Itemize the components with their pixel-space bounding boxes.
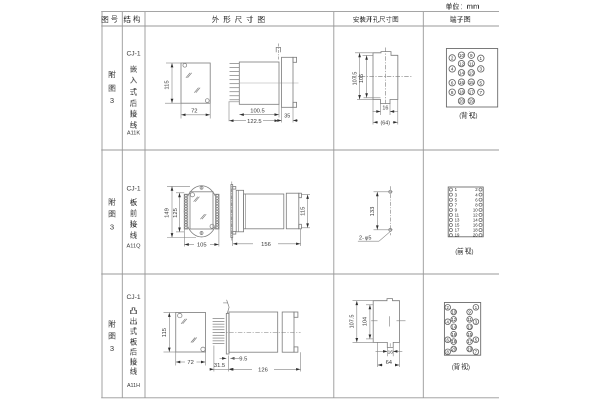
svg-text:105: 105: [197, 243, 207, 249]
svg-text:115: 115: [300, 207, 306, 216]
svg-text:31.5: 31.5: [214, 363, 225, 369]
svg-text:3: 3: [110, 96, 114, 105]
svg-text:16: 16: [459, 80, 465, 85]
svg-text:104: 104: [363, 317, 369, 326]
svg-text:CJ-1: CJ-1: [126, 294, 140, 301]
svg-text:2: 2: [451, 56, 454, 61]
svg-text:18: 18: [451, 339, 456, 344]
svg-text:20: 20: [473, 233, 478, 238]
svg-text:7: 7: [480, 90, 483, 95]
svg-text:126: 126: [258, 367, 268, 373]
svg-text:1: 1: [475, 305, 478, 310]
svg-text:(64): (64): [381, 120, 391, 126]
svg-text:13: 13: [467, 324, 472, 329]
svg-text:17: 17: [467, 339, 472, 344]
svg-text:6: 6: [447, 337, 450, 342]
svg-text:19: 19: [467, 347, 472, 352]
svg-text:4: 4: [451, 67, 454, 72]
svg-text:3: 3: [110, 344, 114, 353]
svg-text:9: 9: [470, 53, 473, 58]
svg-text:): ): [475, 113, 477, 120]
svg-text:19: 19: [455, 233, 460, 238]
svg-text:CJ-1: CJ-1: [126, 51, 140, 58]
svg-text:17: 17: [469, 89, 475, 94]
svg-text:19: 19: [469, 99, 475, 104]
svg-text:9.5: 9.5: [239, 356, 247, 362]
svg-text:10: 10: [459, 53, 465, 58]
svg-text:(: (: [452, 364, 455, 371]
svg-text:4: 4: [447, 319, 450, 324]
svg-text:20: 20: [459, 99, 465, 104]
svg-text:10: 10: [451, 310, 456, 315]
svg-text:7: 7: [475, 349, 478, 354]
svg-text:100.5: 100.5: [250, 108, 265, 114]
svg-text:(: (: [459, 113, 462, 120]
svg-text:64: 64: [386, 360, 393, 366]
svg-text:115: 115: [162, 328, 168, 337]
svg-text:12: 12: [459, 61, 465, 66]
svg-text:149: 149: [165, 208, 171, 218]
svg-text:A11K: A11K: [127, 130, 141, 136]
svg-text:2: 2: [447, 305, 450, 310]
svg-text:CJ-1: CJ-1: [126, 186, 140, 193]
svg-text:): ): [468, 364, 470, 371]
svg-text:1: 1: [480, 56, 483, 61]
svg-text:6: 6: [451, 80, 454, 85]
svg-text:8: 8: [447, 349, 450, 354]
svg-text:15: 15: [469, 80, 475, 85]
svg-text:3: 3: [475, 319, 478, 324]
svg-text:3: 3: [110, 222, 114, 231]
svg-text:20: 20: [451, 347, 456, 352]
svg-text:16: 16: [388, 350, 394, 356]
svg-text:16: 16: [451, 332, 456, 337]
svg-text:15: 15: [467, 332, 472, 337]
svg-text:2-: 2-: [359, 236, 364, 242]
svg-text:107.5: 107.5: [352, 72, 358, 86]
svg-text:φ5: φ5: [365, 236, 372, 242]
svg-text:A11H: A11H: [127, 383, 140, 389]
svg-text:9: 9: [468, 310, 471, 315]
svg-text:72: 72: [191, 109, 197, 115]
svg-text:14: 14: [451, 324, 456, 329]
svg-text:): ): [471, 248, 473, 255]
svg-text:5: 5: [475, 337, 478, 342]
svg-text:8: 8: [451, 90, 454, 95]
svg-text:156: 156: [261, 242, 271, 248]
svg-text:18: 18: [459, 89, 465, 94]
svg-text:(: (: [455, 248, 458, 255]
svg-text:115: 115: [165, 80, 171, 89]
svg-text:107.5: 107.5: [349, 315, 355, 329]
svg-text:3: 3: [480, 67, 483, 72]
svg-text:133: 133: [370, 207, 376, 217]
svg-text:122.5: 122.5: [247, 119, 262, 125]
svg-text:35: 35: [284, 113, 290, 119]
svg-text:12: 12: [451, 317, 456, 322]
svg-text:11: 11: [467, 317, 472, 322]
svg-text:16: 16: [382, 105, 388, 111]
svg-text:105: 105: [359, 74, 365, 83]
svg-text:72: 72: [187, 360, 193, 366]
svg-text:5: 5: [480, 80, 483, 85]
svg-text:125: 125: [173, 208, 179, 218]
svg-text:13: 13: [469, 70, 475, 75]
svg-text:11: 11: [469, 61, 474, 66]
svg-text:14: 14: [459, 70, 465, 75]
svg-text:A11Q: A11Q: [127, 244, 142, 250]
